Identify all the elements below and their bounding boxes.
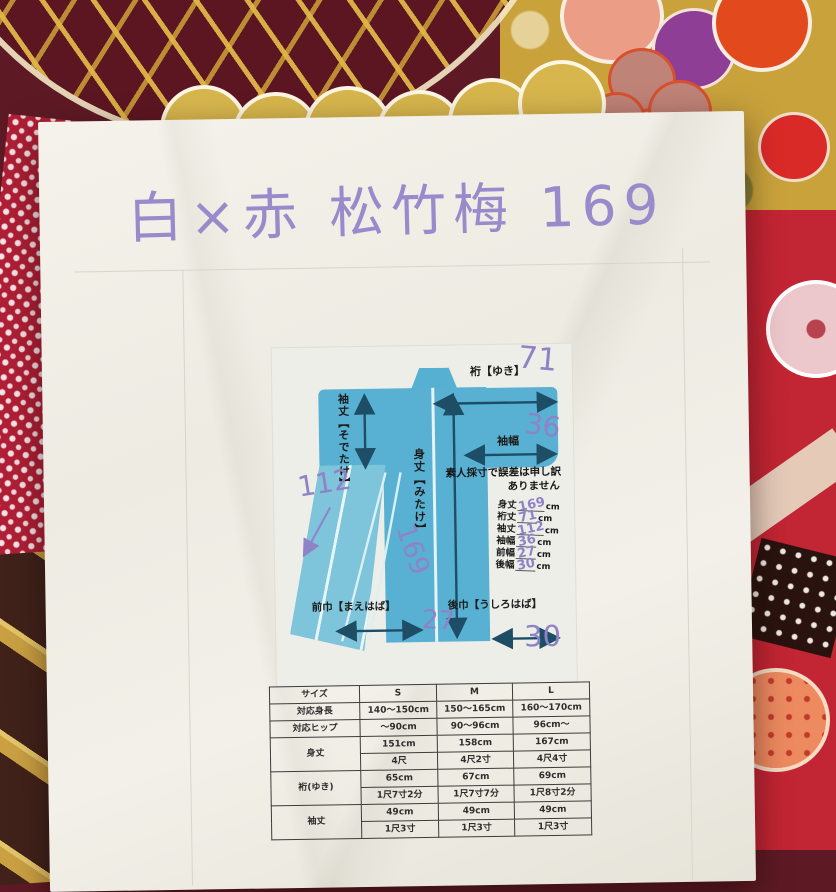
- measure-row: 後幅 30 cm: [495, 559, 557, 572]
- size-table-header: S: [359, 684, 436, 702]
- disclaimer-line2: ありません: [446, 479, 576, 495]
- size-table: サイズ S M L 対応身長 140～150cm 150～165cm 160～1…: [269, 681, 592, 840]
- row-label: 袖丈: [271, 805, 362, 840]
- measure-unit: cm: [537, 538, 551, 549]
- handwritten-title: 白×赤 松竹梅 169: [126, 159, 688, 254]
- row-label: 対応身長: [270, 703, 360, 721]
- cell: 160～170cm: [513, 699, 590, 717]
- cell: 49cm: [438, 802, 514, 820]
- cell: 1尺3寸: [515, 818, 592, 836]
- cell: 4尺2寸: [437, 751, 513, 769]
- row-label: 裄(ゆき): [271, 771, 362, 806]
- size-table-header: L: [512, 682, 589, 700]
- size-table-header: M: [436, 683, 512, 701]
- cell: 1尺3寸: [439, 819, 515, 837]
- measure-unit: cm: [545, 526, 559, 537]
- cell: 65cm: [361, 769, 438, 787]
- cell: 69cm: [514, 767, 591, 785]
- paper-fold-crease: [182, 270, 193, 886]
- measurement-disclaimer: 素人採寸で誤差は申し訳 ありません: [445, 466, 575, 495]
- ushirohaba-handwritten-value: 30: [524, 622, 561, 652]
- cell: 1尺7寸2分: [361, 786, 438, 804]
- maehaba-label: 前巾【まえはば】: [312, 598, 396, 614]
- yuki-handwritten-value: 71: [516, 342, 558, 376]
- measurement-sheet: 白×赤 松竹梅 169: [38, 111, 756, 892]
- cell: 49cm: [361, 803, 438, 821]
- cell: 1尺8寸2分: [514, 784, 591, 802]
- row-label: 対応ヒップ: [270, 720, 360, 738]
- row-label: 身丈: [270, 737, 361, 772]
- cell: 150～165cm: [437, 700, 513, 718]
- maehaba-arrow: [340, 630, 419, 631]
- measure-unit: cm: [536, 562, 550, 573]
- yuki-arrow: [437, 402, 553, 404]
- cell: ～90cm: [360, 718, 437, 736]
- sodehaba-label: 袖幅: [497, 432, 519, 448]
- measurement-list: 身丈 169 cm 裄丈 71 cm 袖丈 112 cm 袖幅 36 cm 前幅: [495, 499, 560, 573]
- measure-unit: cm: [546, 502, 560, 513]
- kimono-diagram: 裄【ゆき】 71 袖丈【そでたけ】 112 袖幅 36 身丈【みたけ】 169 …: [272, 344, 577, 687]
- measure-unit: cm: [537, 550, 551, 561]
- cell: 158cm: [437, 734, 513, 752]
- measure-value: 30: [516, 556, 537, 574]
- cell: 167cm: [513, 733, 590, 751]
- sodetake-arrow: [364, 398, 365, 465]
- cell: 49cm: [514, 801, 591, 819]
- sodehaba-handwritten-value: 36: [523, 410, 562, 443]
- cell: 96cm～: [513, 716, 590, 734]
- cell: 4尺: [360, 752, 437, 770]
- sodehaba-arrow: [468, 454, 553, 455]
- cell: 140～150cm: [360, 701, 437, 719]
- cell: 1尺7寸7分: [438, 785, 514, 803]
- cell: 4尺4寸: [513, 750, 590, 768]
- cell: 67cm: [438, 768, 514, 786]
- fabric-flower-red: [758, 112, 830, 182]
- measure-label: 後幅: [495, 556, 515, 571]
- handwritten-sleeve-arrow: [304, 507, 331, 553]
- okumi-line: [340, 473, 389, 642]
- paper-fold-crease: [74, 261, 710, 272]
- cell: 151cm: [360, 735, 437, 753]
- paper-fold-crease: [682, 248, 693, 880]
- size-table-header: サイズ: [269, 686, 359, 704]
- sodetake-handwritten-value: 112: [296, 466, 353, 502]
- cell: 90～96cm: [437, 717, 513, 735]
- ushirohaba-label: 後巾【うしろはば】: [448, 596, 543, 612]
